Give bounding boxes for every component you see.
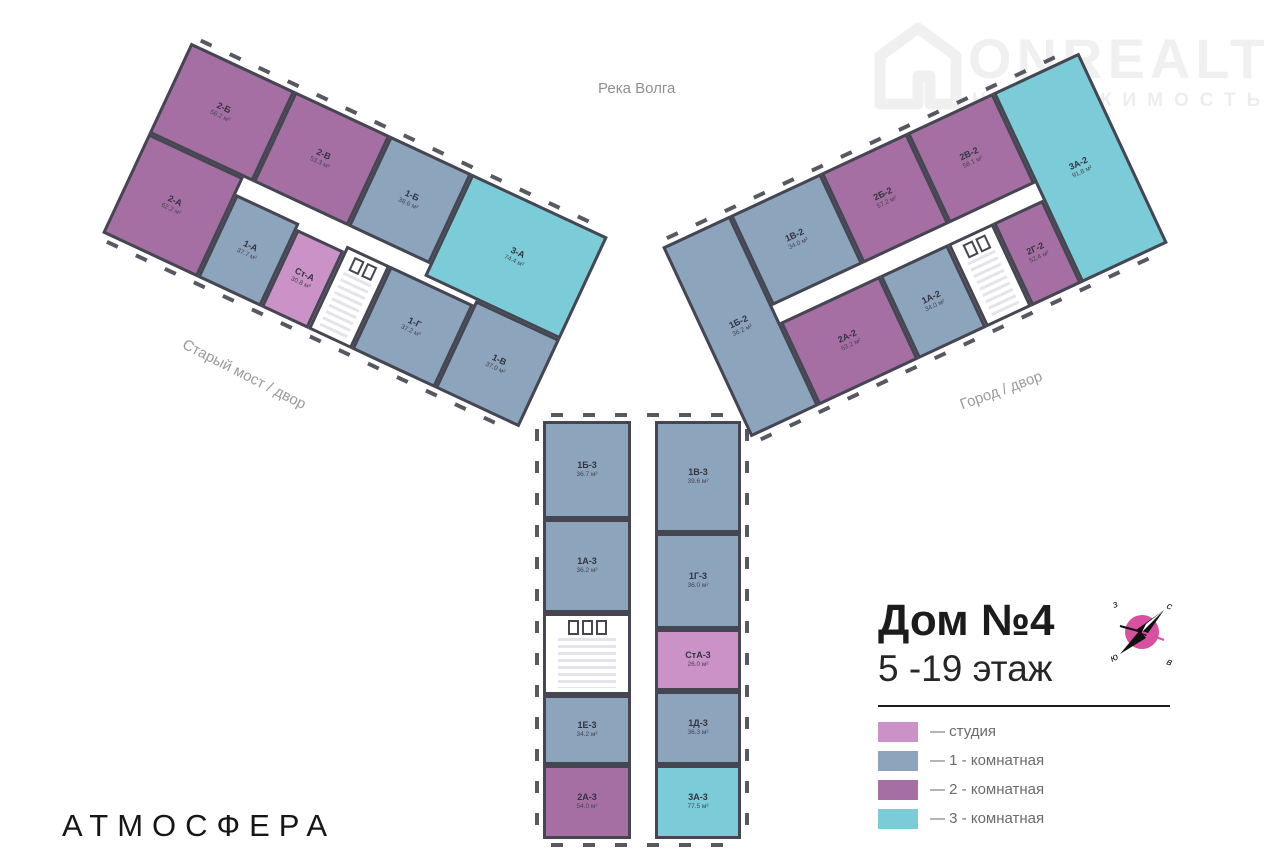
- apartment-1b-3: 1Б-3 36.7 м²: [543, 421, 631, 519]
- elevator-shaft: [568, 620, 579, 635]
- legend-swatch-1-room: [878, 751, 918, 771]
- elevator-shaft: [361, 263, 377, 281]
- apartment-area: 36.0 м²: [687, 583, 708, 590]
- svg-text:в: в: [1165, 656, 1174, 668]
- stairs: [558, 638, 615, 688]
- apartment-1a-3: 1А-3 36.2 м²: [543, 519, 631, 613]
- windows-strip: [745, 429, 749, 831]
- apartment-area: 39.6 м²: [687, 479, 708, 486]
- compass-rose-icon: з с ю в: [1106, 596, 1178, 668]
- elevator-shaft: [975, 235, 991, 253]
- apartment-name: 2А-3: [577, 793, 597, 802]
- apartment-area: 34.2 м²: [576, 732, 597, 739]
- svg-text:з: з: [1110, 599, 1119, 611]
- apartment-name: 1Д-3: [688, 719, 707, 728]
- apartment-name: 1В-3: [688, 468, 708, 477]
- apartment-area: 54.0 м²: [576, 804, 597, 811]
- apartment-name: 1Е-3: [577, 721, 596, 730]
- legend-label: — студия: [930, 723, 996, 740]
- legend-label: — 3 - комнатная: [930, 810, 1044, 827]
- street-label-right: Город / двор: [958, 368, 1045, 413]
- elevator-shaft: [596, 620, 607, 635]
- apartment-1v-3: 1В-3 39.6 м²: [655, 421, 741, 533]
- street-label-left: Старый мост / двор: [180, 336, 309, 413]
- river-label: Река Волга: [598, 80, 675, 97]
- apartment-1d-3: 1Д-3 36.3 м²: [655, 691, 741, 765]
- apartment-area: 77.5 м²: [687, 804, 708, 811]
- floor-plan-building-left: 2-Б 56.2 м² 2-В 53.3 м² 1-Б 38.6 м² 3-А …: [102, 43, 608, 428]
- legend-item-2-room: — 2 - комнатная: [878, 779, 1178, 800]
- onrealt-house-icon: [874, 22, 962, 110]
- apartment-1g-3: 1Г-3 36.0 м²: [655, 533, 741, 629]
- legend-item-1-room: — 1 - комнатная: [878, 750, 1178, 771]
- apartment-area: 26.0 м²: [687, 662, 708, 669]
- apartment-sta-3: СтА-3 26.0 м²: [655, 629, 741, 691]
- windows-strip: [535, 429, 539, 831]
- legend-item-3-room: — 3 - комнатная: [878, 808, 1178, 829]
- elevator-shafts: [568, 620, 607, 635]
- apartment-name: 1Б-3: [577, 461, 596, 470]
- svg-text:ю: ю: [1109, 651, 1121, 664]
- legend-swatch-3-room: [878, 809, 918, 829]
- legend-label: — 1 - комнатная: [930, 752, 1044, 769]
- elevator-shaft: [582, 620, 593, 635]
- windows-strip: [551, 843, 733, 847]
- divider-line: [878, 705, 1170, 707]
- windows-strip: [551, 413, 733, 417]
- legend-label: — 2 - комнатная: [930, 781, 1044, 798]
- atmosfera-logo: АТМОСФЕРА: [62, 808, 336, 844]
- apartment-name: СтА-3: [685, 651, 710, 660]
- apartment-area: 36.7 м²: [576, 472, 597, 479]
- apartment-1e-3: 1Е-3 34.2 м²: [543, 695, 631, 765]
- legend-item-studio: — студия: [878, 721, 1178, 742]
- legend: — студия — 1 - комнатная — 2 - комнатная…: [878, 721, 1178, 829]
- apartment-area: 36.3 м²: [687, 730, 708, 737]
- apartment-name: 1Г-3: [689, 572, 707, 581]
- apartment-3a-3: 3А-3 77.5 м²: [655, 765, 741, 839]
- apartment-name: 3А-3: [688, 793, 708, 802]
- onrealt-brand-text: ONREALT: [968, 26, 1270, 91]
- apartment-name: 1А-3: [577, 557, 597, 566]
- stair-elevator-core: [543, 613, 631, 695]
- floor-plan-building-bottom: 1Б-3 36.7 м² 1В-3 39.6 м² 1А-3 36.2 м² 1…: [543, 421, 741, 839]
- apartment-area: 36.2 м²: [576, 568, 597, 575]
- legend-swatch-studio: [878, 722, 918, 742]
- svg-text:с: с: [1165, 601, 1174, 613]
- floor-plan-building-right: 1Б-2 36.2 м² 1В-2 34.0 м² 2Б-2 57.2 м² 2…: [662, 53, 1168, 438]
- apartment-2a-3: 2А-3 54.0 м²: [543, 765, 631, 839]
- legend-swatch-2-room: [878, 780, 918, 800]
